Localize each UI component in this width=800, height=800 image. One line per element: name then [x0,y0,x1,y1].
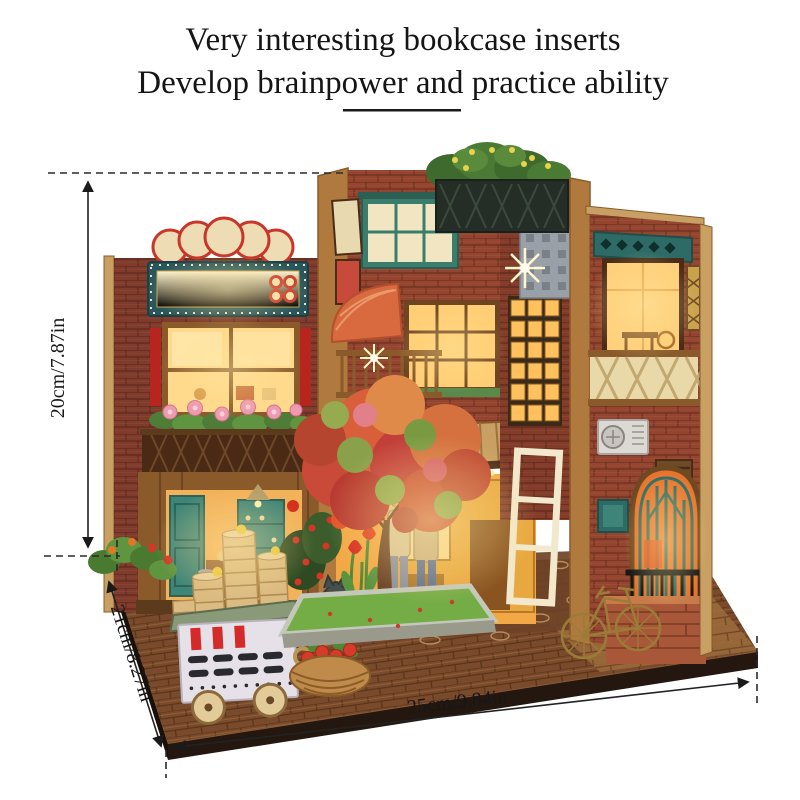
headline-line2: Develop brainpower and practice ability [137,65,669,101]
gray-tile-panel [520,228,572,298]
red-banner [300,328,311,406]
product-image: 20cm/7.87in 21cm/8.27in 25cm/9.84in Very… [0,0,800,800]
headline-underline [343,109,461,112]
headline-line1: Very interesting bookcase inserts [185,22,620,58]
dollhouse-product-photo: 20cm/7.87in 21cm/8.27in 25cm/9.84in Very… [0,0,800,800]
starburst-light-icon [360,344,388,372]
balcony-railing [140,429,316,472]
wall-poster [332,199,362,255]
rooftop-garden [426,142,571,232]
headline: Very interesting bookcase inserts Develo… [137,22,669,112]
starburst-light-icon [505,248,545,288]
red-banner [150,328,161,406]
height-dimension-label: 20cm/7.87in [47,318,69,419]
air-conditioner [598,420,648,454]
